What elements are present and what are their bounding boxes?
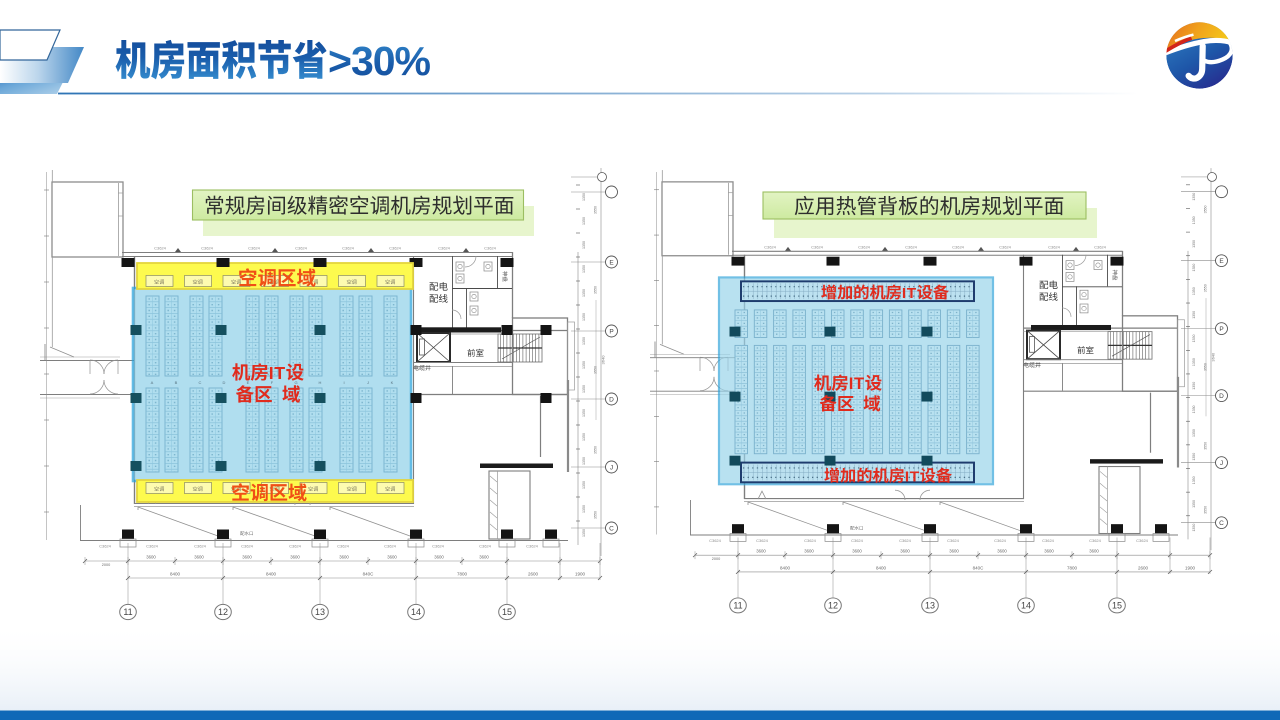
- svg-text:C3624: C3624: [526, 544, 539, 549]
- svg-text:3550: 3550: [594, 446, 598, 454]
- svg-text:E: E: [247, 380, 250, 385]
- svg-text:C3624: C3624: [154, 246, 167, 251]
- svg-text:2600: 2600: [528, 572, 539, 577]
- svg-text:C3624: C3624: [146, 544, 159, 549]
- svg-text:C3624: C3624: [432, 544, 445, 549]
- svg-text:3600: 3600: [194, 555, 204, 560]
- svg-text:1350: 1350: [582, 433, 586, 441]
- svg-text:12: 12: [218, 607, 228, 617]
- svg-text:D: D: [609, 396, 614, 403]
- svg-text:14: 14: [411, 607, 421, 617]
- svg-text:C3624: C3624: [484, 246, 497, 251]
- svg-text:E: E: [609, 259, 614, 266]
- svg-text:3550: 3550: [594, 511, 598, 519]
- svg-text:3550: 3550: [594, 206, 598, 214]
- svg-text:C3624: C3624: [201, 246, 214, 251]
- svg-text:J: J: [610, 464, 613, 471]
- svg-text:15: 15: [502, 607, 512, 617]
- svg-text:C3624: C3624: [438, 246, 451, 251]
- svg-text:T: T: [274, 363, 285, 383]
- svg-text:C3624: C3624: [337, 544, 350, 549]
- svg-text:I: I: [902, 285, 906, 302]
- svg-text:J: J: [367, 380, 369, 385]
- svg-text:13: 13: [315, 607, 325, 617]
- svg-text:1350: 1350: [582, 265, 586, 273]
- svg-text:1350: 1350: [582, 505, 586, 513]
- svg-text:C: C: [609, 525, 614, 532]
- svg-text:T: T: [854, 375, 864, 393]
- svg-text:3600: 3600: [242, 555, 252, 560]
- svg-text:1350: 1350: [582, 385, 586, 393]
- svg-text:1350: 1350: [582, 409, 586, 417]
- svg-text:7800: 7800: [457, 572, 468, 577]
- svg-text:C3624: C3624: [241, 544, 254, 549]
- svg-text:1350: 1350: [582, 289, 586, 297]
- svg-text:K: K: [391, 380, 394, 385]
- svg-text:1350: 1350: [582, 313, 586, 321]
- svg-text:1350: 1350: [582, 217, 586, 225]
- svg-text:1900: 1900: [575, 572, 586, 577]
- svg-text:C3624: C3624: [342, 246, 355, 251]
- svg-text:C3624: C3624: [295, 246, 308, 251]
- svg-text:3550: 3550: [594, 366, 598, 374]
- svg-text:I: I: [269, 363, 274, 383]
- svg-text:3640: 3640: [601, 355, 606, 365]
- svg-text:C3624: C3624: [248, 246, 261, 251]
- svg-text:C3624: C3624: [194, 544, 207, 549]
- svg-text:3600: 3600: [434, 555, 444, 560]
- svg-text:P: P: [609, 328, 613, 335]
- svg-text:3600: 3600: [479, 555, 489, 560]
- svg-text:T: T: [907, 285, 917, 302]
- svg-text:B: B: [175, 380, 178, 385]
- svg-text:C3624: C3624: [384, 544, 397, 549]
- svg-text:2000: 2000: [102, 563, 110, 567]
- svg-text:A: A: [151, 380, 154, 385]
- svg-text:I: I: [849, 375, 854, 393]
- svg-text:C3624: C3624: [289, 544, 302, 549]
- svg-text:1350: 1350: [582, 193, 586, 201]
- svg-text:G: G: [294, 380, 297, 385]
- svg-text:8400: 8400: [266, 572, 277, 577]
- svg-text:C: C: [199, 380, 202, 385]
- svg-text:D: D: [223, 380, 226, 385]
- svg-text:I: I: [905, 468, 909, 485]
- svg-text:1350: 1350: [582, 481, 586, 489]
- svg-text:C3624: C3624: [389, 246, 402, 251]
- svg-text:H: H: [319, 380, 322, 385]
- svg-text:1350: 1350: [582, 361, 586, 369]
- svg-text:8400: 8400: [170, 572, 181, 577]
- svg-text:>30%: >30%: [328, 38, 431, 84]
- svg-text:C3624: C3624: [479, 544, 492, 549]
- svg-text:1350: 1350: [582, 337, 586, 345]
- svg-text:1350: 1350: [582, 241, 586, 249]
- svg-text:3550: 3550: [594, 286, 598, 294]
- svg-text:1350: 1350: [582, 529, 586, 537]
- svg-text:3600: 3600: [146, 555, 156, 560]
- svg-text:I: I: [343, 380, 344, 385]
- svg-text:3600: 3600: [387, 555, 397, 560]
- svg-text:3600: 3600: [290, 555, 300, 560]
- svg-text:840C: 840C: [363, 572, 375, 577]
- svg-text:C3624: C3624: [99, 544, 112, 549]
- svg-text:1350: 1350: [582, 457, 586, 465]
- svg-text:T: T: [910, 468, 920, 485]
- svg-text:11: 11: [123, 607, 132, 617]
- svg-text:3600: 3600: [339, 555, 349, 560]
